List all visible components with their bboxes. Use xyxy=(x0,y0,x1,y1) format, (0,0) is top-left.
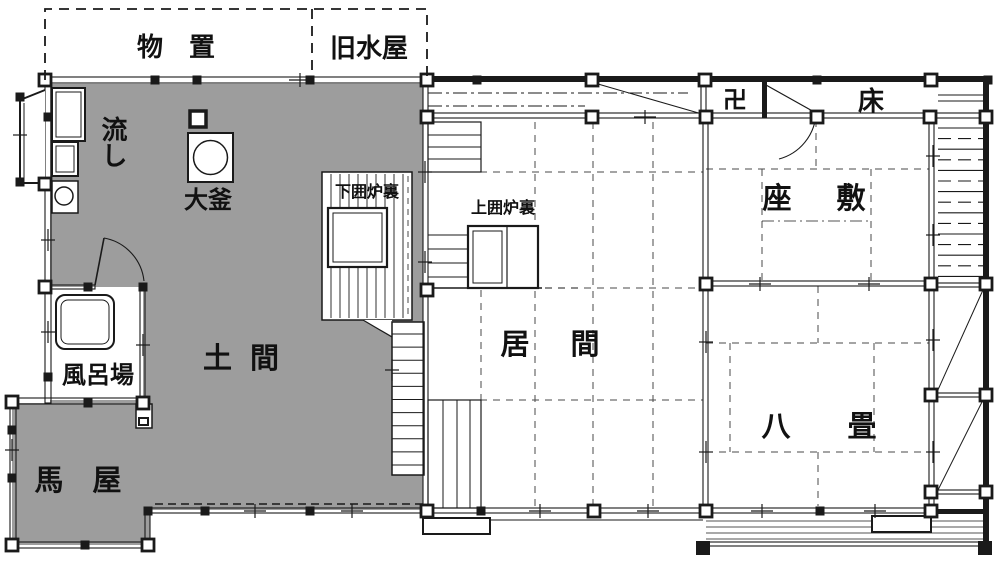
label-shimo-irori: 下囲炉裏 xyxy=(335,182,400,201)
post xyxy=(816,507,825,516)
post xyxy=(421,284,433,296)
label-monooki: 物 置 xyxy=(137,33,215,63)
lower-hearth xyxy=(328,208,387,267)
label-ima: 居 間 xyxy=(500,327,605,361)
post xyxy=(700,278,712,290)
post xyxy=(193,76,202,85)
post xyxy=(978,541,992,555)
post xyxy=(586,74,598,86)
left-bay xyxy=(20,90,45,183)
label-kyu-mizuya: 旧水屋 xyxy=(330,34,408,64)
post xyxy=(44,113,53,122)
label-manji: 卍 xyxy=(723,86,747,114)
post xyxy=(8,474,17,483)
post xyxy=(84,399,93,408)
post xyxy=(811,111,823,123)
post xyxy=(16,93,25,102)
post xyxy=(8,426,17,435)
floor-plan: 物 置 旧水屋 流し 大釜 下囲炉裏 上囲炉裏 卍 床 座 敷 居 間 八 畳 … xyxy=(0,0,1000,561)
sink-counter xyxy=(52,88,85,141)
post xyxy=(139,283,148,292)
post xyxy=(16,178,25,187)
post xyxy=(84,283,93,292)
post xyxy=(81,541,90,550)
post xyxy=(925,74,937,86)
post xyxy=(306,507,315,516)
post xyxy=(700,505,712,517)
post xyxy=(925,278,937,290)
label-zashiki: 座 敷 xyxy=(762,181,873,215)
post xyxy=(421,505,433,517)
post xyxy=(980,111,992,123)
post xyxy=(925,505,937,517)
post xyxy=(201,507,210,516)
post xyxy=(925,389,937,401)
post xyxy=(6,396,18,408)
label-doma: 土 間 xyxy=(203,341,283,375)
post xyxy=(39,178,51,190)
post xyxy=(700,111,712,123)
post xyxy=(588,505,600,517)
post xyxy=(980,486,992,498)
post xyxy=(6,539,18,551)
post xyxy=(980,389,992,401)
chimney-square xyxy=(190,111,206,127)
entry-step xyxy=(423,518,490,534)
upper-hearth xyxy=(468,226,538,288)
post xyxy=(477,507,486,516)
label-kami-irori: 上囲炉裏 xyxy=(471,198,536,217)
post xyxy=(924,111,936,123)
post xyxy=(473,76,482,85)
post xyxy=(151,76,160,85)
post xyxy=(421,111,433,123)
label-ogama: 大釜 xyxy=(184,186,233,214)
post xyxy=(586,111,598,123)
label-toko: 床 xyxy=(858,86,884,117)
post xyxy=(39,281,51,293)
post xyxy=(144,507,153,516)
post xyxy=(980,278,992,290)
floor-plan-svg: 物 置 旧水屋 流し 大釜 下囲炉裏 上囲炉裏 卍 床 座 敷 居 間 八 畳 … xyxy=(0,0,1000,561)
label-umaya: 馬 屋 xyxy=(34,463,121,497)
post xyxy=(813,76,822,85)
post xyxy=(142,539,154,551)
bathtub xyxy=(56,295,114,349)
post xyxy=(44,373,53,382)
label-hachijo: 八 畳 xyxy=(761,409,890,443)
label-nagashi: 流し xyxy=(97,116,127,168)
post xyxy=(984,76,993,85)
post xyxy=(137,397,149,409)
board-strip xyxy=(428,400,481,508)
post xyxy=(925,486,937,498)
veranda-step xyxy=(872,516,931,532)
post xyxy=(699,74,711,86)
label-furoba: 風呂場 xyxy=(62,361,134,389)
post xyxy=(696,541,710,555)
